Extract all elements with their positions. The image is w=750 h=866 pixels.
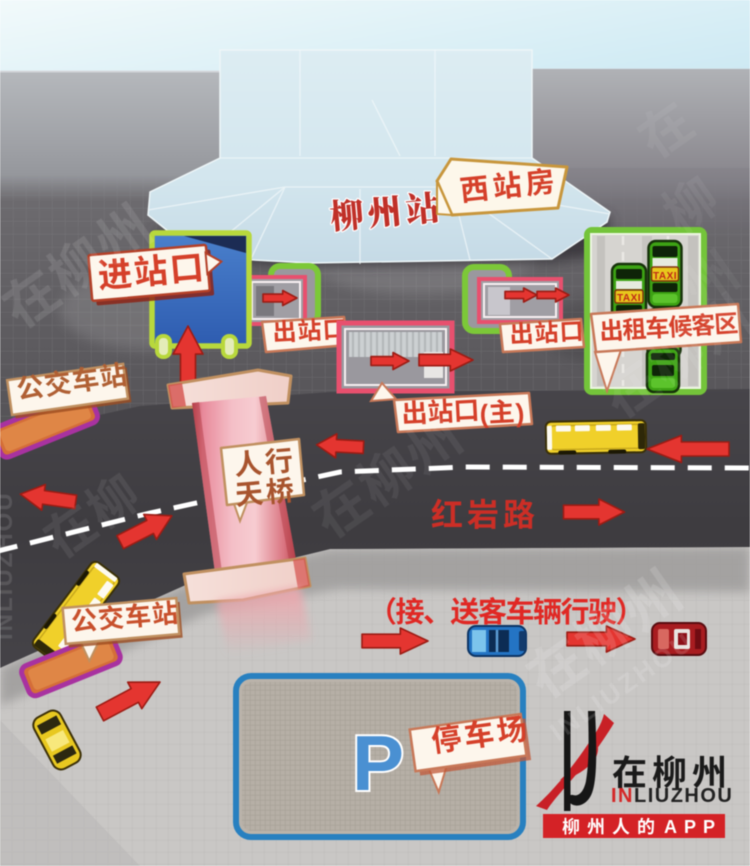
svg-text:TAXI: TAXI: [653, 271, 677, 282]
svg-text:APP: APP: [664, 817, 722, 837]
svg-text:TAXI: TAXI: [617, 293, 641, 304]
svg-text:INLIUZHOU: INLIUZHOU: [611, 785, 733, 807]
svg-text:INLIUZHOU: INLIUZHOU: [0, 491, 18, 640]
svg-text:): ): [515, 398, 525, 428]
svg-text:P: P: [352, 719, 404, 807]
